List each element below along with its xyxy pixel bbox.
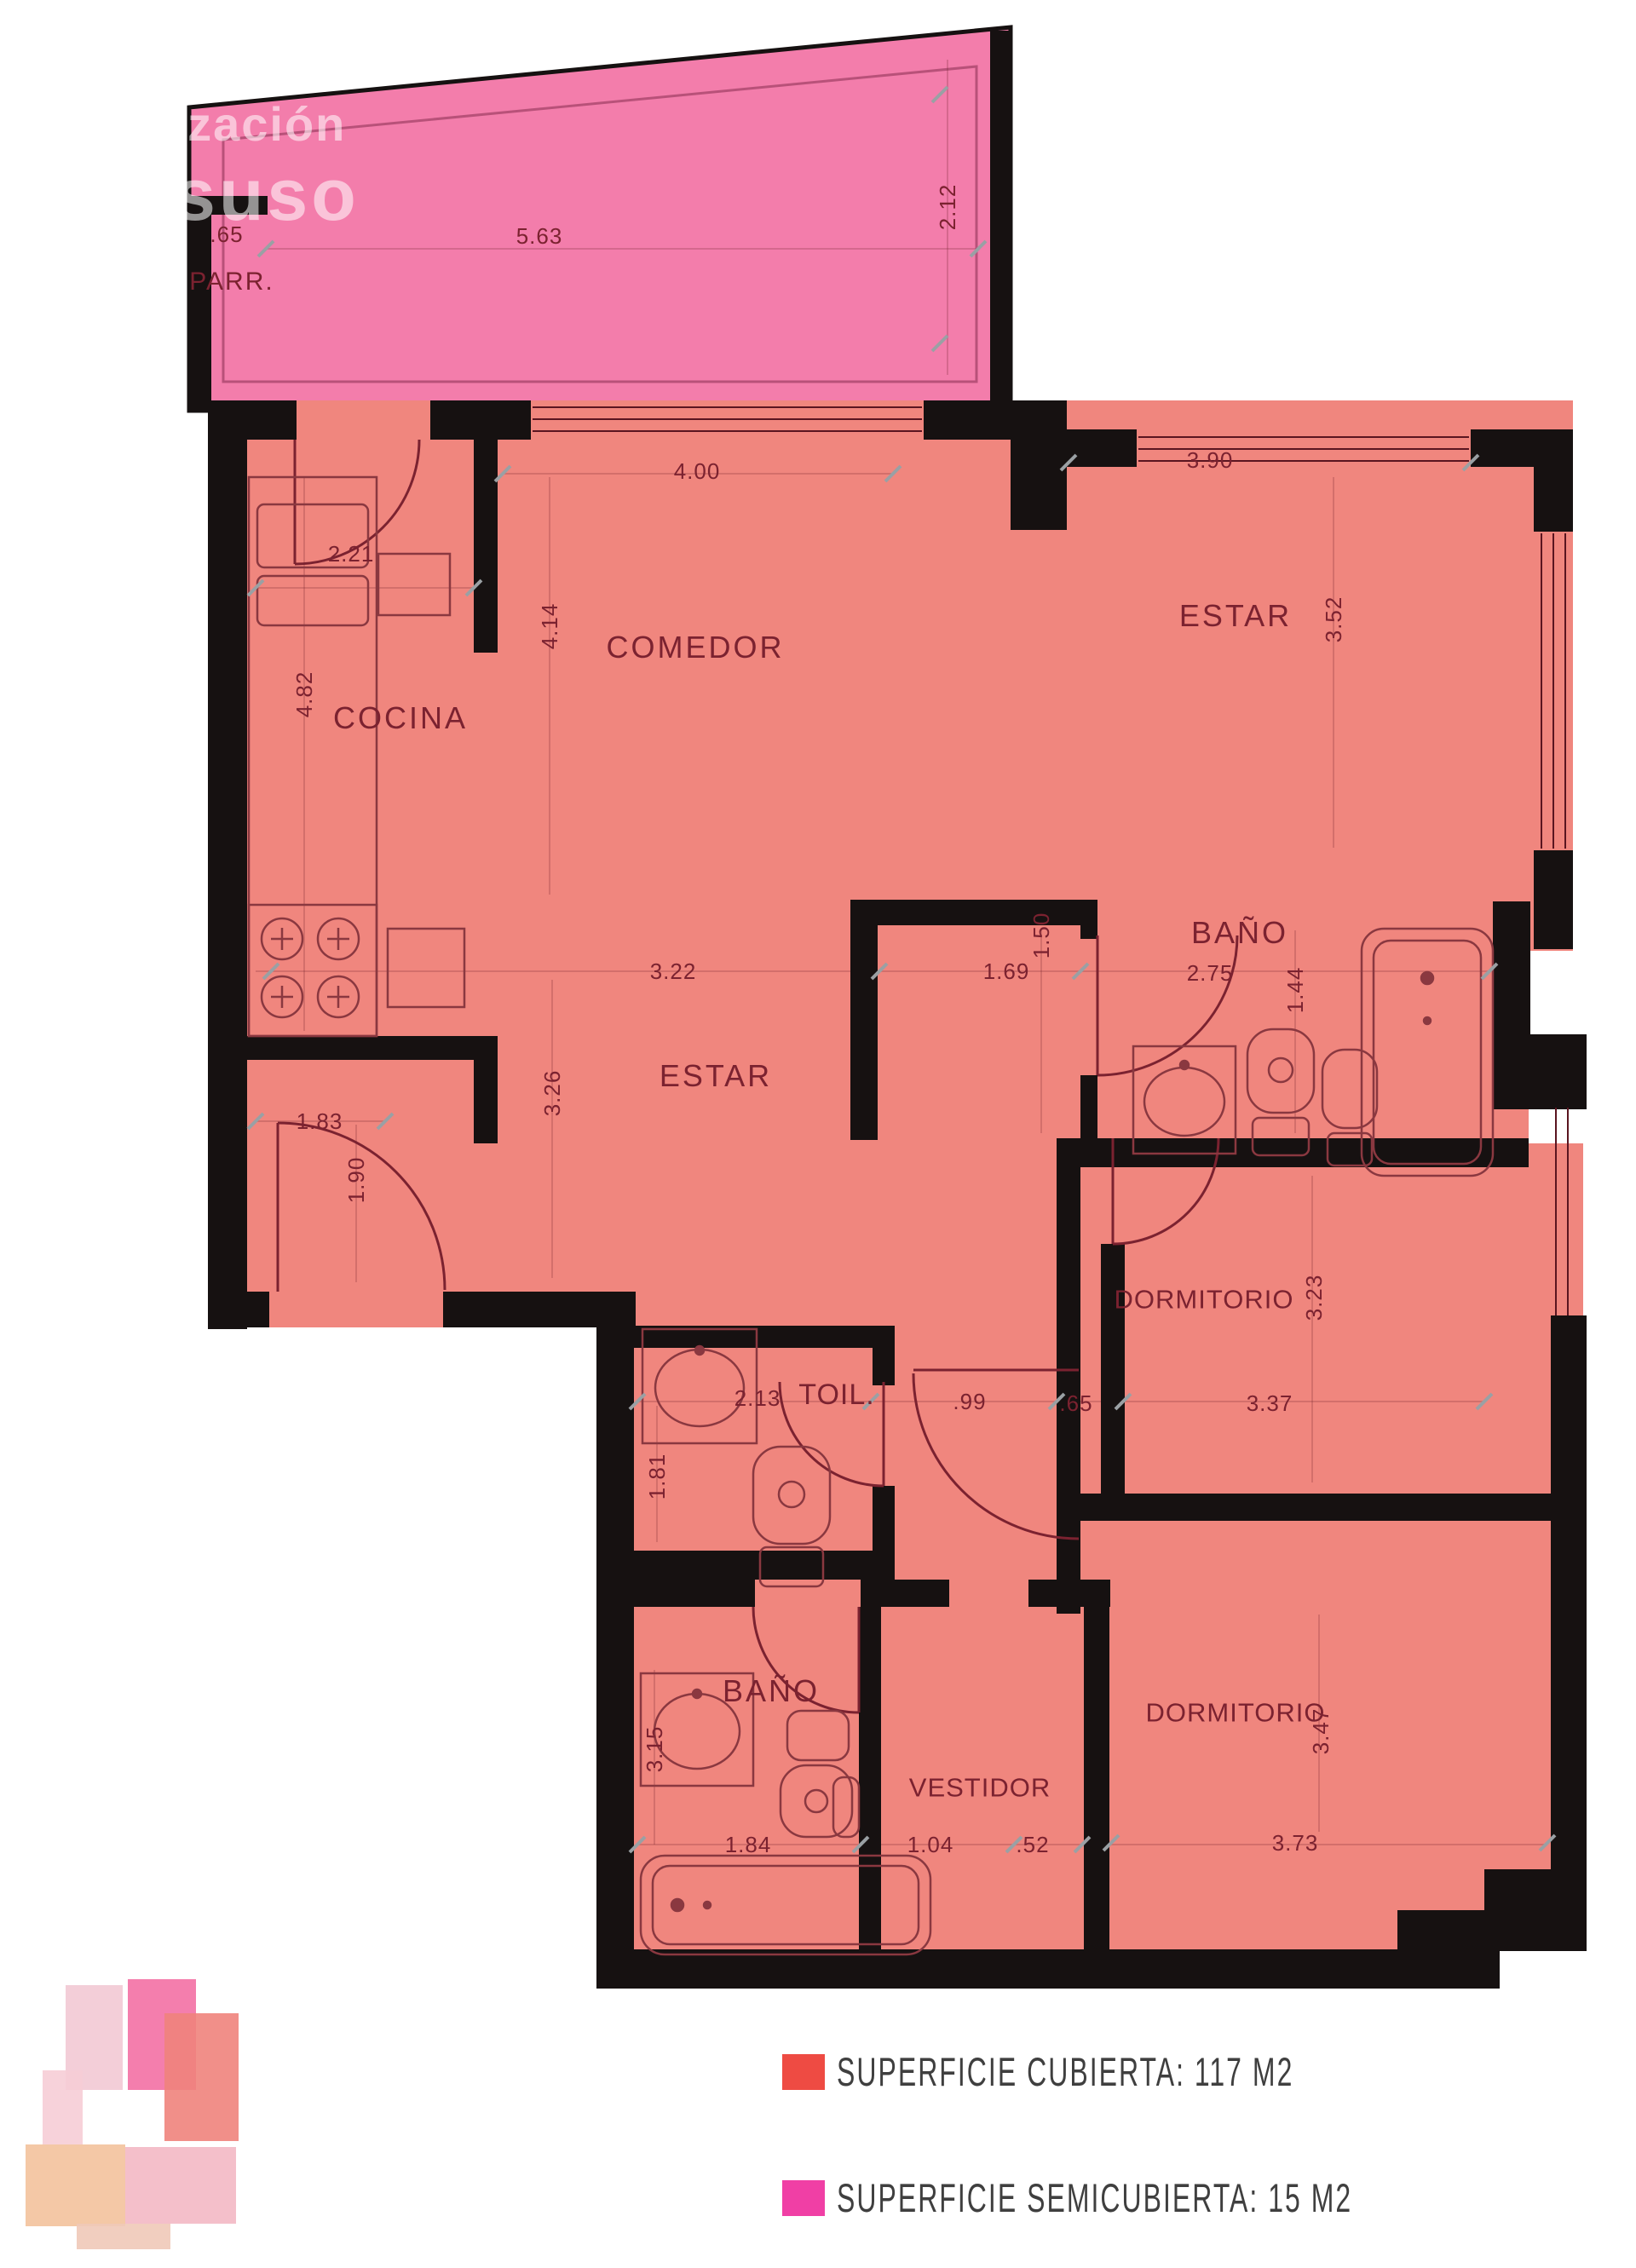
floor-plan: lización suso PARR. .65 5.63 2.12 COCINA…: [0, 0, 1636, 2268]
room-label-parrilla: PARR.: [189, 269, 274, 295]
dim-bano-suite-w: 2.75: [1187, 962, 1234, 984]
dim-bano-suite-h: 1.44: [1284, 967, 1306, 1014]
dim-comedor-h: 4.14: [539, 603, 561, 650]
legend-semicovered: SUPERFICIE SEMICUBIERTA: 15 M2: [782, 2174, 1595, 2221]
watermark-line2: suso: [175, 158, 360, 232]
legend-covered: SUPERFICIE CUBIERTA: 117 M2: [782, 2048, 1509, 2095]
dim-bano2-w: 1.84: [725, 1833, 772, 1856]
room-label-comedor: COMEDOR: [607, 632, 785, 663]
room-label-bano-suite: BAÑO: [1191, 918, 1288, 948]
dim-dormitorio1-h: 3.23: [1303, 1275, 1325, 1321]
legend-covered-swatch: [782, 2054, 825, 2090]
dim-acceso-bano-w: 1.69: [983, 960, 1030, 982]
dim-dormitorio2-w: 3.73: [1272, 1832, 1319, 1854]
dim-vestidor-w: 1.04: [907, 1833, 954, 1856]
room-label-estar: ESTAR: [660, 1061, 772, 1091]
dim-comedor-w: 4.00: [674, 460, 721, 482]
dim-dormitorio1-w: 3.37: [1247, 1392, 1293, 1414]
dim-estar-h: 3.26: [541, 1070, 563, 1117]
legend-semicovered-label: SUPERFICIE SEMICUBIERTA: 15 M2: [837, 2174, 1352, 2221]
window-comedor: [531, 400, 924, 440]
room-label-toilette: TOIL.: [798, 1380, 874, 1409]
apartment-floor: [208, 400, 1636, 1965]
dim-terrace-top: 5.63: [516, 225, 563, 247]
dim-terrace-side: 2.12: [936, 184, 959, 231]
legend-semicovered-swatch: [782, 2180, 825, 2216]
dim-toilette-w: 2.13: [734, 1387, 781, 1409]
room-label-cocina: COCINA: [333, 703, 468, 734]
watermark-line1: lización: [158, 101, 346, 148]
dim-estar-norte-w: 3.90: [1187, 449, 1234, 471]
dim-cocina-h: 4.82: [293, 671, 315, 718]
dim-estar-norte-h: 3.52: [1322, 596, 1345, 643]
dim-bano2-h: 3.15: [643, 1726, 665, 1773]
dim-vestidor-w2: .52: [1016, 1833, 1049, 1856]
room-label-bano2: BAÑO: [723, 1676, 820, 1707]
floor-plan-drawing: [0, 0, 1636, 2268]
dim-dormitorio2-h: 3.47: [1310, 1708, 1332, 1755]
dim-entrada-h: 1.90: [345, 1157, 367, 1204]
dim-entrada-w: 1.83: [297, 1110, 343, 1132]
room-label-vestidor: VESTIDOR: [909, 1775, 1051, 1801]
dim-pasillo-w2: .65: [1059, 1392, 1092, 1414]
room-label-dormitorio1: DORMITORIO: [1115, 1287, 1294, 1313]
legend-covered-label: SUPERFICIE CUBIERTA: 117 M2: [837, 2048, 1293, 2095]
room-label-estar-norte: ESTAR: [1179, 601, 1292, 631]
dim-estar-w: 3.22: [650, 960, 697, 982]
dim-cocina-w: 2.21: [328, 543, 375, 565]
dim-toilette-h: 1.81: [646, 1453, 668, 1500]
dim-acceso-bano-h: 1.50: [1030, 912, 1052, 959]
room-label-dormitorio2: DORMITORIO: [1146, 1700, 1326, 1726]
dim-pasillo-w: .99: [953, 1390, 986, 1413]
window-estar-lateral: [1534, 532, 1573, 850]
